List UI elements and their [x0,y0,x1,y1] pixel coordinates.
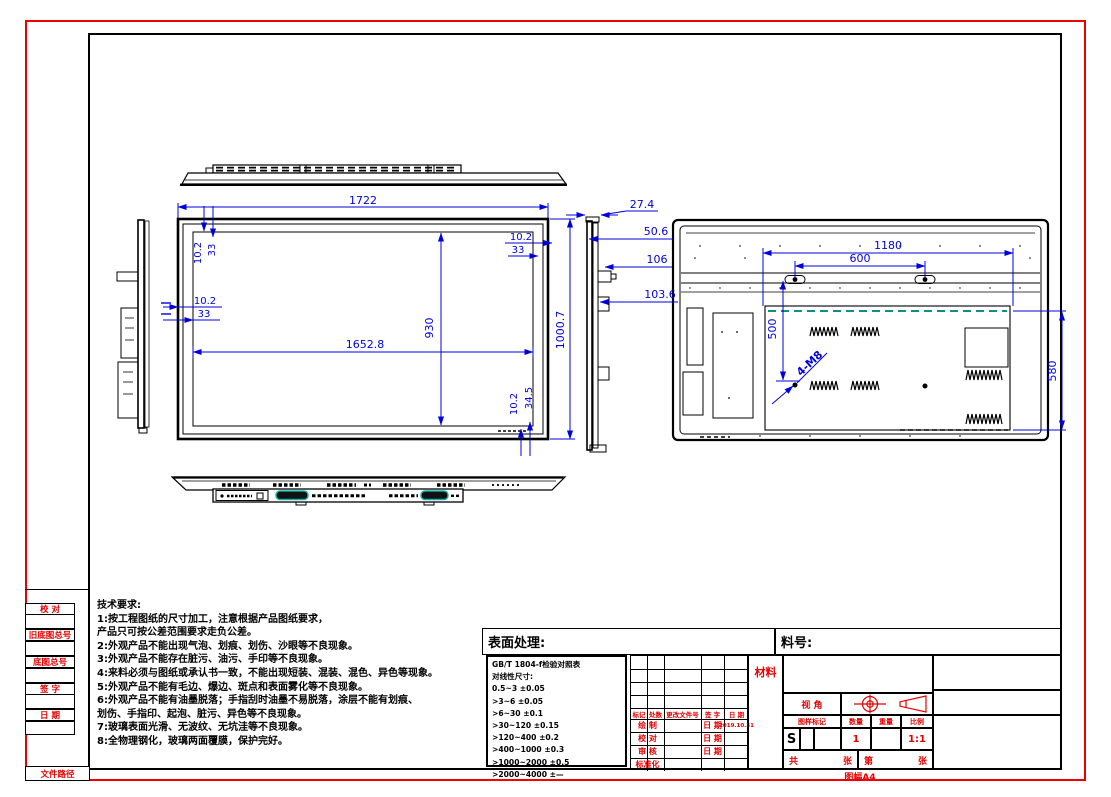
sidebar-cell-empty [25,694,75,709]
tolerance-table: GB/T 1804-f检验对照表 对线性尺寸: 0.5~3 ±0.05 >3~6… [486,655,627,767]
tech-line: 8:全物理钢化，玻璃两面覆膜，保护完好。 [97,735,438,749]
stamp-sub-cell [814,728,841,750]
material-cell: 材料 [748,655,783,770]
sidebar-cell-empty [25,668,75,683]
sheets-no-label: 第 [864,754,873,767]
qty-value-cell: 1 [841,728,871,750]
tech-line: 产品只可按公差范围要求走负公差。 [97,626,438,640]
row-label-check: 校 对 [631,732,664,745]
scale-header-cell: 比例 [901,715,933,728]
tech-line: 1:按工程图纸的尺寸加工，注意根据产品图纸要求， [97,613,438,627]
grid-line [631,682,749,683]
first-angle-projection-icon [842,694,932,714]
date-label: 日 期 [701,745,724,758]
side-view [586,217,616,452]
tolerance-row: >3~6 ±0.05 [492,696,625,708]
grid-line [631,695,749,696]
dim-bezel-br-1: 10.2 [509,393,520,415]
change-header-file: 更改文件号 [664,708,701,719]
row-label-audit: 审 核 [631,745,664,758]
tech-line: 划伤、手指印、起泡、脏污、异色等不良现象。 [97,708,438,722]
tolerance-row: >400~1000 ±0.3 [492,744,625,756]
tolerance-title: GB/T 1804-f检验对照表 [492,659,625,671]
sidebar-item-file-path: 文件路径 [25,766,90,781]
tolerance-row: >30~120 ±0.15 [492,720,625,732]
tech-requirements: 技术要求: 1:按工程图纸的尺寸加工，注意根据产品图纸要求， 产品只可按公差范围… [97,599,438,749]
part-number-box: 料号: [775,628,1062,655]
sidebar-cell-empty [25,614,75,629]
date-label: 日 期 [701,732,724,745]
drawing-page: 1722 1652.8 930 1000.7 10.2 33 10.2 33 1… [0,0,1111,797]
dim-bezel-l-2: 33 [198,309,211,320]
tech-title: 技术要求: [97,599,438,613]
dim-vesa-offset: 500 [766,319,779,340]
weight-header-cell: 重量 [871,715,901,728]
top-view [180,165,567,185]
dim-rear-height: 580 [1046,361,1059,382]
left-side-view [117,220,149,433]
dim-bezel-tr-2: 33 [512,245,525,256]
sheets-unit-label: 张 [843,754,852,767]
tech-line: 6:外观产品不能有油墨脱落；手指刮时油墨不易脱落，涂层不能有划痕、 [97,694,438,708]
tb-empty-box [783,655,933,693]
dim-inner-width: 1652.8 [346,338,385,351]
sheets-total-cell: 共 张 [783,750,858,770]
format-label: 图幅A4 [800,771,920,781]
scale-value-cell: 1:1 [901,728,933,750]
change-record-table: 标记 处数 更改文件号 签 字 日 期 绘 制 日 期 2019.10.31 校… [630,655,748,770]
stamp-sub-cell [800,728,814,750]
row-label-draw: 绘 制 [631,719,664,732]
tolerance-row: >1000~2000 ±0.5 [492,757,625,769]
sheets-unit-label: 张 [918,754,927,767]
front-view [178,219,548,439]
dim-bezel-tl-2: 33 [207,244,218,257]
bottom-view [172,477,565,505]
part-number-label: 料号: [781,632,812,651]
surface-treatment-box: 表面处理: [482,628,775,655]
tolerance-row: >6~30 ±0.1 [492,708,625,720]
sidebar-cell-empty [25,641,75,656]
change-header-date: 日 期 [724,708,749,719]
sidebar-item-date: 日 期 [25,709,75,721]
sidebar-item-base-no: 底图总号 [25,656,75,668]
dim-bezel-tl-1: 10.2 [193,242,204,264]
dim-bezel-br-2: 34.5 [524,387,535,409]
grid-line [631,669,749,670]
tb-empty-box [933,715,1062,770]
dim-depth-4: 103.6 [644,288,676,301]
dim-bezel-tr-1: 10.2 [510,232,532,243]
dim-depth-3: 106 [647,253,668,266]
dim-depth-1: 27.4 [630,198,655,211]
sidebar-cell-empty [25,721,75,735]
sidebar-top-line [25,589,88,590]
stamp-header-cell: 图样标记 [783,715,841,728]
tolerance-row: 0.5~3 ±0.05 [492,683,625,695]
tb-empty-box [933,690,1062,715]
tolerance-row: >120~400 ±0.2 [492,732,625,744]
tb-empty-box [933,655,1062,690]
dim-front-width: 1722 [349,194,377,207]
sidebar-item-old-base-no: 旧底图总号 [25,629,75,641]
sheets-no-cell: 第 张 [858,750,933,770]
weight-value-cell [871,728,901,750]
tech-line: 4:来料必须与图纸或承认书一致，不能出现短装、混装、混色、异色等现象。 [97,667,438,681]
dim-vesa-width: 600 [850,252,871,265]
tolerance-subtitle: 对线性尺寸: [492,671,625,683]
dim-depth-2: 50.6 [644,225,669,238]
tech-line: 5:外观产品不能有毛边、爆边、斑点和表面雾化等不良现象。 [97,681,438,695]
tech-line: 2:外观产品不能出现气泡、划痕、划伤、沙眼等不良现象。 [97,640,438,654]
view-angle-cell: 视 角 [783,693,841,715]
row-label-standardize: 标准化 [631,758,664,771]
sheets-total-label: 共 [789,754,798,767]
tech-line: 7:玻璃表面光滑、无波纹、无坑洼等不良现象。 [97,721,438,735]
change-header-count: 处数 [647,708,664,719]
dim-inner-height: 930 [423,318,436,339]
tech-line: 3:外观产品不能存在脏污、油污、手印等不良现象。 [97,653,438,667]
dim-bezel-l-1: 10.2 [194,296,216,307]
dim-rear-width: 1180 [874,239,902,252]
draw-date-value: 2019.10.31 [724,719,749,732]
dim-front-height: 1000.7 [554,311,567,350]
change-header-mark: 标记 [631,708,647,719]
view-angle-label: 视 角 [801,698,822,711]
stamp-value-cell: S [783,728,800,750]
surface-treatment-label: 表面处理: [488,632,545,651]
projection-symbol-cell [841,693,933,715]
change-header-sign: 签 字 [701,708,724,719]
material-label: 材料 [749,664,782,680]
qty-header-cell: 数量 [841,715,871,728]
tolerance-row: >2000~4000 ±— [492,769,625,781]
